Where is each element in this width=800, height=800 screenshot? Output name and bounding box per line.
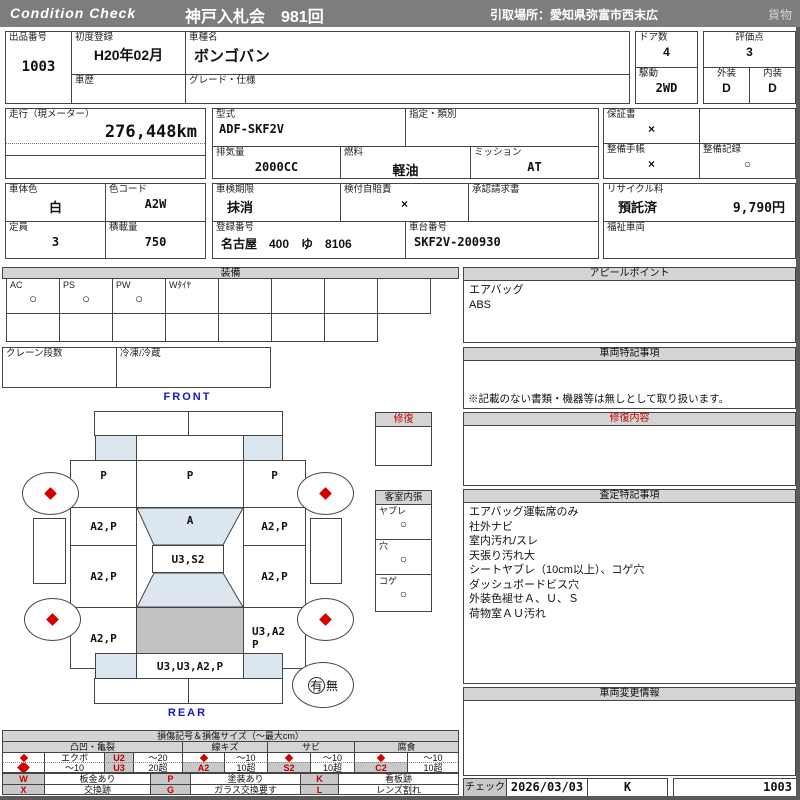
first-registration-label: 初度登録 <box>72 32 185 45</box>
repair-mini-title: 修復 <box>376 413 431 427</box>
cowl-panel <box>136 435 244 461</box>
capacity-label: 定員 <box>6 222 105 235</box>
cabin-tear-cell: ヤブレ ○ <box>376 505 431 540</box>
crane-label: クレーン段数 <box>3 348 116 361</box>
mileage-divider <box>6 144 205 156</box>
interior-grade-cell: 内装 D <box>749 67 796 104</box>
car-history-cell: 車歴 <box>71 74 186 104</box>
repair-content-title: 修復内容 <box>464 413 795 426</box>
hood-panel: P <box>136 460 244 508</box>
presence-yes-circled: 有 <box>308 677 325 694</box>
crane-cell: クレーン段数 <box>2 347 117 388</box>
model-name-label: 車種名 <box>186 32 629 45</box>
appeal-points-title: アピールポイント <box>464 268 795 281</box>
recycle-fee-cell: リサイクル料 預託済 9,790円 <box>603 183 796 222</box>
model-code-value: ADF-SKF2V <box>213 122 405 136</box>
assessment-line: 室内汚れ/スレ <box>469 534 790 549</box>
maintenance-record-value: ○ <box>700 157 795 171</box>
equipment-cell-empty <box>377 278 431 314</box>
warranty-label: 保証書 <box>604 109 699 122</box>
change-info-panel: 車両変更情報 <box>463 687 796 776</box>
diamond-small-icon <box>3 752 44 762</box>
exterior-grade-cell: 外装 D <box>703 67 750 104</box>
wheel-rear-left <box>24 598 81 641</box>
maintenance-record-cell: 整備記録 ○ <box>699 143 796 179</box>
special-notes-title: 車両特記事項 <box>464 348 795 361</box>
equipment-cell-wtire: Wﾀｲﾔ <box>165 278 219 314</box>
check-date-cell: 2026/03/03 <box>506 778 588 797</box>
front-corner-glass-right <box>243 435 283 461</box>
displacement-cell: 排気量 2000CC <box>212 146 341 179</box>
first-registration-value: H20年02月 <box>72 45 185 65</box>
color-code-value: A2W <box>106 197 205 211</box>
door-side-right: A2,P <box>243 545 306 608</box>
interior-grade-label: 内装 <box>750 68 795 81</box>
legend-group-corrosion: 腐食 <box>354 742 458 752</box>
assessment-line: 荷物室ＡＵ汚れ <box>469 607 790 622</box>
spare-tire-presence: 有無 <box>292 662 354 708</box>
maintenance-book-cell: 整備手帳 × <box>603 143 700 179</box>
color-code-cell: 色コード A2W <box>105 183 206 222</box>
legend-group-scratch: 線キズ <box>182 742 267 752</box>
equipment-cell-empty <box>324 278 378 314</box>
assessment-notes-title: 査定特記事項 <box>464 490 795 503</box>
insurance-value: × <box>341 197 468 211</box>
cargo-area <box>136 607 244 654</box>
doors-cell: ドア数 4 <box>635 31 698 68</box>
insurance-label: 検付自賠責 <box>341 184 468 197</box>
presence-no: 無 <box>326 677 338 694</box>
equipment-cell-empty <box>218 313 272 342</box>
lot-number-cell: 出品番号 1003 <box>5 31 72 104</box>
door-front-left: A2,P <box>70 507 137 546</box>
diamond-icon <box>354 752 407 762</box>
model-name-value: ボンゴバン <box>186 45 629 66</box>
symbol-codes-row-2: X 交換跡 G ガラス交換要す L レンズ割れ <box>3 784 458 794</box>
model-code-label: 型式 <box>213 109 405 122</box>
transmission-cell: ミッション AT <box>470 146 599 179</box>
inspection-expiry-value: 抹消 <box>213 197 340 216</box>
equipment-cell-empty <box>271 278 325 314</box>
repair-mini-box: 修復 <box>375 412 432 466</box>
damage-diamond-icon <box>319 487 332 500</box>
rear-corner-glass-right <box>243 653 283 679</box>
front-corner-glass-left <box>95 435 137 461</box>
welfare-vehicle-label: 福祉車両 <box>604 222 795 235</box>
cabin-hole-cell: 穴 ○ <box>376 540 431 575</box>
recycle-fee-label: リサイクル料 <box>604 184 795 197</box>
displacement-label: 排気量 <box>213 147 340 160</box>
capacity-cell: 定員 3 <box>5 221 106 259</box>
front-bumper-right <box>188 411 283 436</box>
rear-window-glass <box>136 572 244 608</box>
legend-group-row: 凸凹・亀裂 線キズ サビ 腐食 <box>3 742 458 752</box>
page-right-edge <box>796 27 800 800</box>
displacement-value: 2000CC <box>213 160 340 174</box>
legend-size-row-1: エクボ U2 ～20 ～10 ～10 ～10 <box>3 752 458 762</box>
equipment-cell-empty <box>59 313 113 342</box>
recycle-status: 預託済 <box>618 197 657 216</box>
approval-request-cell: 承認請求書 <box>468 183 599 222</box>
auction-sheet: Condition Check 神戸入札会 981回 引取場所：愛知県弥富市西末… <box>0 0 800 800</box>
check-lot-cell: 1003 <box>673 778 798 797</box>
equipment-cell-ac: AC○ <box>6 278 60 314</box>
header-bar: Condition Check 神戸入札会 981回 引取場所：愛知県弥富市西末… <box>0 0 800 27</box>
door-front-right: A2,P <box>243 507 306 546</box>
lot-number-value: 1003 <box>6 59 71 75</box>
payload-cell: 積載量 750 <box>105 221 206 259</box>
damage-diamond-icon <box>44 487 57 500</box>
chassis-number-value: SKF2V-200930 <box>406 235 598 249</box>
fuel-cell: 燃料 軽油 <box>340 146 471 179</box>
side-step-right <box>310 518 342 584</box>
class-type-cell: 指定・類別 <box>405 108 599 147</box>
capacity-value: 3 <box>6 235 105 249</box>
inspection-expiry-label: 車検期限 <box>213 184 340 197</box>
model-name-cell: 車種名 ボンゴバン <box>185 31 630 75</box>
score-label: 評価点 <box>704 32 795 45</box>
reefer-label: 冷凍/冷蔵 <box>117 348 270 361</box>
diamond-icon <box>182 752 224 762</box>
side-step-left <box>33 518 66 584</box>
assessment-line: 天張り汚れ大 <box>469 549 790 564</box>
diamond-big-icon <box>3 762 44 772</box>
warranty-value: × <box>604 122 699 136</box>
reefer-cell: 冷凍/冷蔵 <box>116 347 271 388</box>
maintenance-book-label: 整備手帳 <box>604 144 699 157</box>
car-history-label: 車歴 <box>72 75 185 88</box>
color-code-label: 色コード <box>106 184 205 197</box>
assessment-notes-panel: 査定特記事項 エアバッグ運転席のみ 社外ナビ 室内汚れ/スレ 天張り汚れ大 シー… <box>463 489 796 684</box>
cabin-lining-box: 客室内張 ヤブレ ○ 穴 ○ コゲ ○ <box>375 490 432 612</box>
fuel-label: 燃料 <box>341 147 470 160</box>
body-color-value: 白 <box>6 197 105 216</box>
damage-diamond-icon <box>46 613 59 626</box>
inspection-expiry-cell: 車検期限 抹消 <box>212 183 341 222</box>
appeal-line: ABS <box>469 298 790 313</box>
brand-logo: Condition Check <box>10 5 136 21</box>
equipment-cell-empty <box>6 313 60 342</box>
equipment-cell-empty <box>112 313 166 342</box>
fender-front-left: P <box>70 460 137 508</box>
rear-bumper-left <box>94 678 189 704</box>
equipment-cell-empty <box>271 313 325 342</box>
rear-gate-panel: U3,U3,A2,P <box>136 653 244 679</box>
wheel-front-left <box>22 472 79 515</box>
wheel-rear-right <box>297 598 354 641</box>
interior-grade-value: D <box>750 81 795 95</box>
mileage-label: 走行（現メーター） <box>6 109 205 122</box>
drive-cell: 駆動 2WD <box>635 67 698 104</box>
damage-diamond-icon <box>319 613 332 626</box>
exterior-grade-value: D <box>704 81 749 95</box>
warranty-cell: 保証書 × <box>603 108 700 144</box>
payload-value: 750 <box>106 235 205 249</box>
assessment-line: 外装色褪せＡ、Ｕ、Ｓ <box>469 592 790 607</box>
chassis-number-label: 車台番号 <box>406 222 598 235</box>
approval-request-label: 承認請求書 <box>469 184 598 197</box>
page-bottom-edge <box>0 796 800 800</box>
legend-size-row-2: ～10 U3 20超 A2 10超 S2 10超 C2 10超 <box>3 762 458 772</box>
door-side-left: A2,P <box>70 545 137 608</box>
appeal-line: エアバッグ <box>469 283 790 298</box>
mileage-cell: 走行（現メーター） 276,448km <box>5 108 206 179</box>
check-inspector-cell: K <box>587 778 668 797</box>
damage-legend-table: 損傷記号＆損傷サイズ（～最大cm） 凸凹・亀裂 線キズ サビ 腐食 エクボ U2… <box>2 730 459 773</box>
front-label: FRONT <box>120 391 255 403</box>
maintenance-book-value: × <box>604 157 699 171</box>
maintenance-record-label: 整備記録 <box>700 144 795 157</box>
exterior-grade-label: 外装 <box>704 68 749 81</box>
diamond-icon <box>267 752 310 762</box>
assessment-line: ダッシュボードビス穴 <box>469 578 790 593</box>
registration-number-label: 登録番号 <box>213 222 405 235</box>
check-label-cell: チェック <box>463 778 507 797</box>
class-type-label: 指定・類別 <box>406 109 598 122</box>
model-code-cell: 型式 ADF-SKF2V <box>212 108 406 147</box>
special-notes-panel: 車両特記事項 ※記載のない書類・機器等は無しとして取り扱います。 <box>463 347 796 409</box>
assessment-line: エアバッグ運転席のみ <box>469 505 790 520</box>
score-cell: 評価点 3 <box>703 31 796 68</box>
change-info-title: 車両変更情報 <box>464 688 795 701</box>
warranty-blank-cell <box>699 108 796 144</box>
doors-label: ドア数 <box>636 32 697 45</box>
symbol-codes-row-1: W 板金あり P 塗装あり K 看板跡 <box>3 774 458 784</box>
body-color-label: 車体色 <box>6 184 105 197</box>
fender-front-right: P <box>243 460 306 508</box>
welfare-vehicle-cell: 福祉車両 <box>603 221 796 259</box>
equipment-cell-pw: PW○ <box>112 278 166 314</box>
assessment-line: シートヤブレ（10cm以上）、コゲ穴 <box>469 563 790 578</box>
mileage-value: 276,448km <box>6 122 205 144</box>
transmission-label: ミッション <box>471 147 598 160</box>
lot-number-label: 出品番号 <box>6 32 71 45</box>
chassis-number-cell: 車台番号 SKF2V-200930 <box>405 221 599 259</box>
pickup-location: 引取場所：愛知県弥富市西末広 <box>490 6 658 23</box>
score-value: 3 <box>704 45 795 59</box>
fuel-value: 軽油 <box>341 160 470 179</box>
equipment-cell-ps: PS○ <box>59 278 113 314</box>
front-bumper-left <box>94 411 189 436</box>
grade-cell: グレード・仕様 <box>185 74 630 104</box>
wheel-front-right <box>297 472 354 515</box>
category-tag: 貨物 <box>768 6 792 23</box>
rear-bumper-right <box>188 678 283 704</box>
roof-panel: U3,S2 <box>152 545 224 573</box>
cabin-lining-title: 客室内張 <box>376 491 431 505</box>
rear-label: REAR <box>120 707 255 719</box>
cabin-burn-cell: コゲ ○ <box>376 575 431 610</box>
drive-value: 2WD <box>636 81 697 95</box>
body-color-cell: 車体色 白 <box>5 183 106 222</box>
registration-number-value: 名古屋 400 ゆ 8106 <box>213 235 405 252</box>
appeal-points-panel: アピールポイント エアバッグ ABS <box>463 267 796 343</box>
grade-label: グレード・仕様 <box>186 75 629 88</box>
rear-corner-glass-left <box>95 653 137 679</box>
equipment-cell-empty <box>165 313 219 342</box>
special-notes-footnote: ※記載のない書類・機器等は無しとして取り扱います。 <box>468 391 729 406</box>
auction-title: 神戸入札会 981回 <box>185 3 324 27</box>
assessment-line: 社外ナビ <box>469 520 790 535</box>
legend-title: 損傷記号＆損傷サイズ（～最大cm） <box>3 731 458 742</box>
drive-label: 駆動 <box>636 68 697 81</box>
transmission-value: AT <box>471 160 598 174</box>
registration-number-cell: 登録番号 名古屋 400 ゆ 8106 <box>212 221 406 259</box>
equipment-cell-empty <box>324 313 378 342</box>
symbol-codes-table: W 板金あり P 塗装あり K 看板跡 X 交換跡 G ガラス交換要す L レン… <box>2 773 459 795</box>
legend-group-dent: 凸凹・亀裂 <box>3 742 182 752</box>
payload-label: 積載量 <box>106 222 205 235</box>
equipment-cell-empty <box>218 278 272 314</box>
repair-content-panel: 修復内容 <box>463 412 796 486</box>
first-registration-cell: 初度登録 H20年02月 <box>71 31 186 75</box>
legend-group-rust: サビ <box>267 742 354 752</box>
recycle-fee-value: 9,790円 <box>733 197 785 216</box>
windshield-code: A <box>136 514 244 527</box>
insurance-cell: 検付自賠責 × <box>340 183 469 222</box>
doors-value: 4 <box>636 45 697 59</box>
